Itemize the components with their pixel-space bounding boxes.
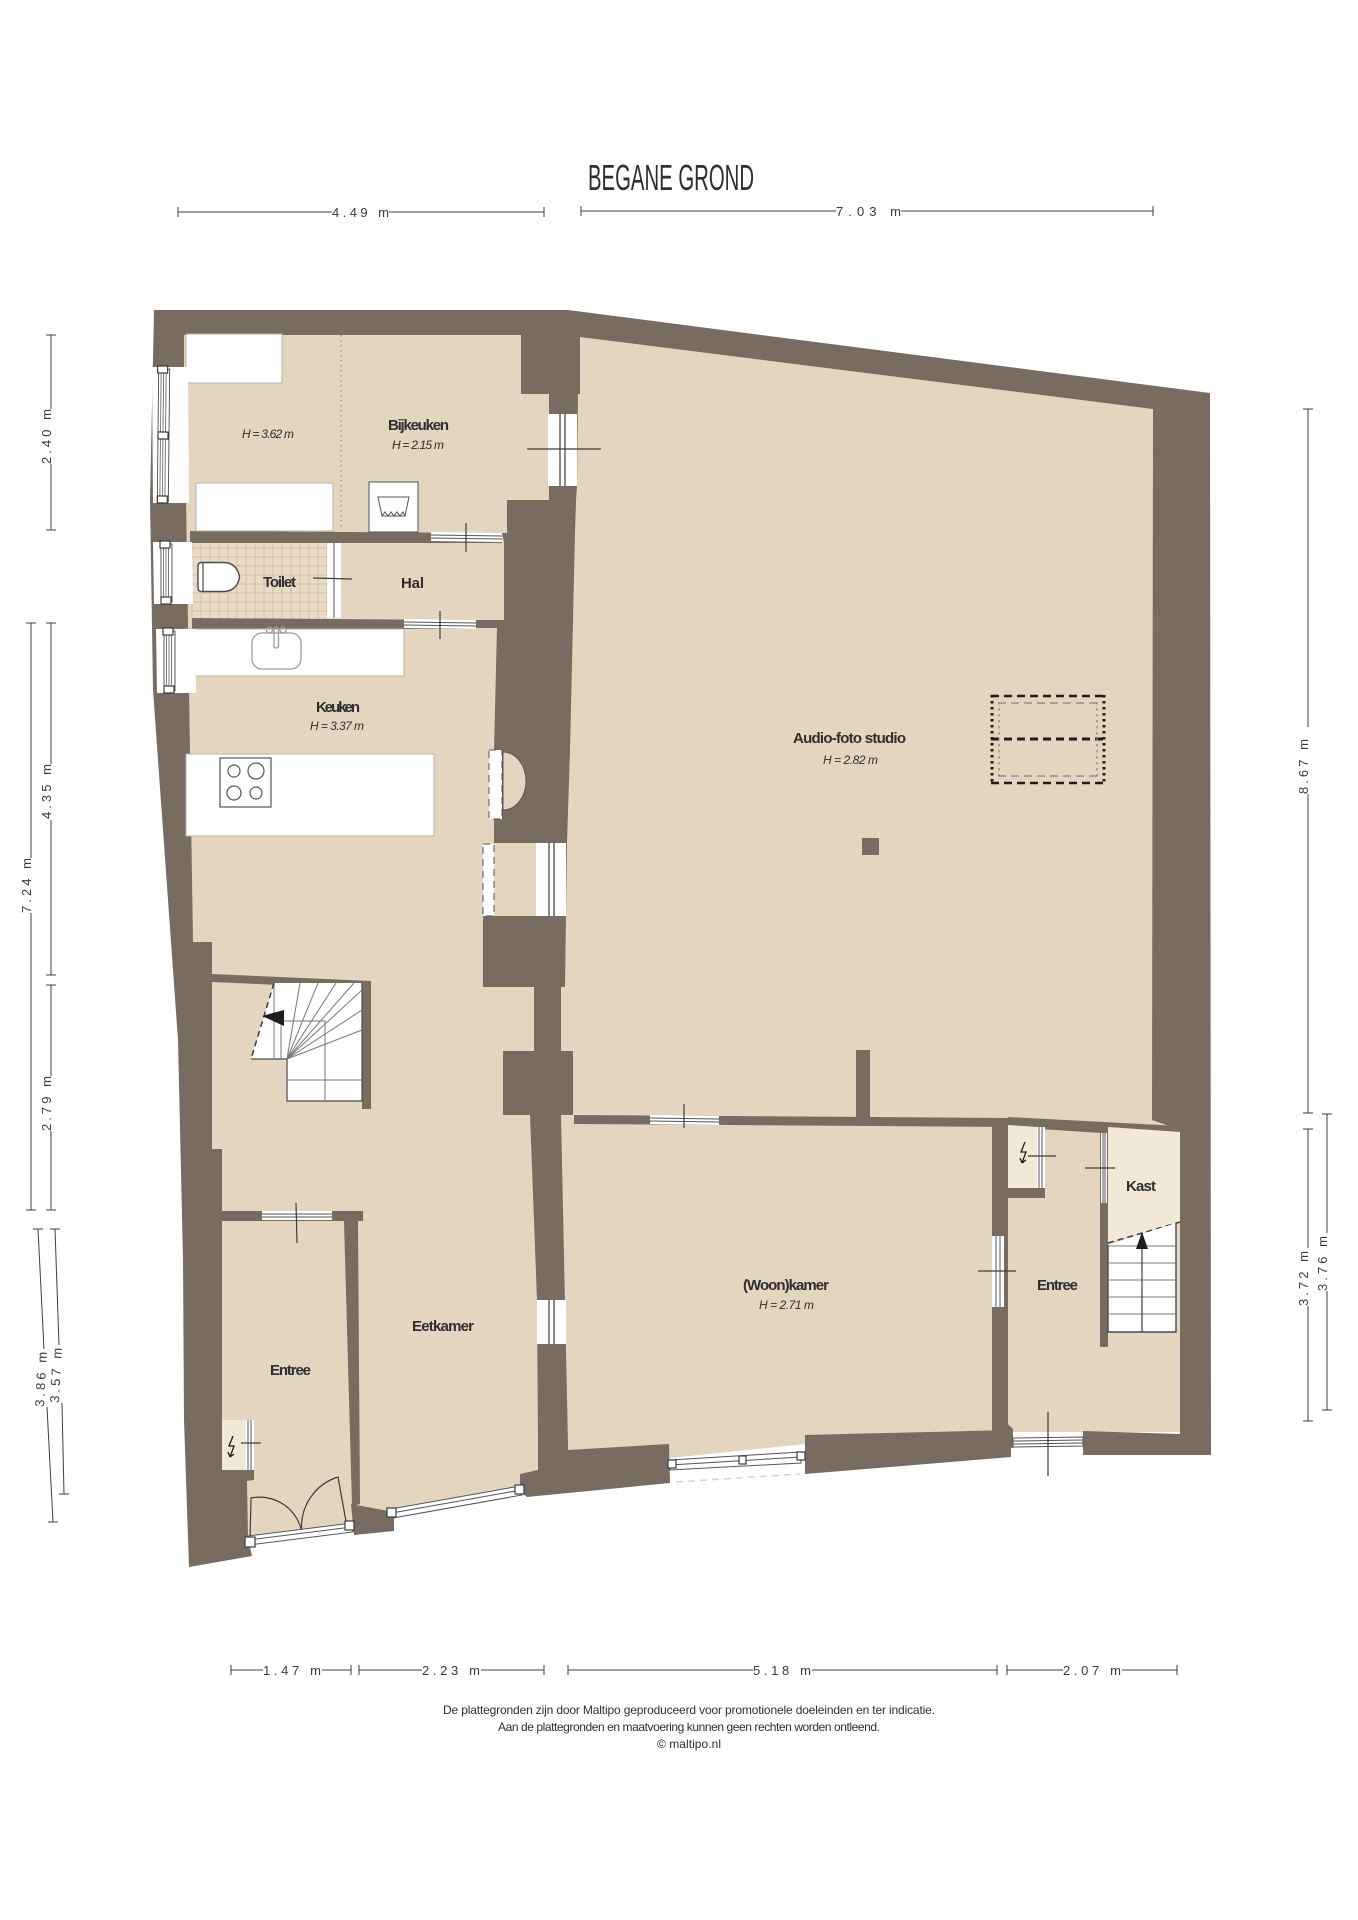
svg-text:Keuken: Keuken (316, 699, 360, 716)
svg-text:Entree: Entree (270, 1362, 311, 1379)
svg-text:BEGANE GROND: BEGANE GROND (588, 157, 754, 198)
svg-text:Aan de plattegronden en maatvo: Aan de plattegronden en maatvoering kunn… (498, 1720, 880, 1734)
svg-text:H = 3.37 m: H = 3.37 m (310, 719, 364, 733)
svg-text:H = 2.71 m: H = 2.71 m (759, 1298, 814, 1312)
svg-text:Entree: Entree (1037, 1277, 1078, 1294)
svg-text:De plattegronden zijn door Mal: De plattegronden zijn door Maltipo gepro… (443, 1703, 935, 1717)
svg-text:Audio-foto studio: Audio-foto studio (793, 730, 906, 747)
svg-text:Hal: Hal (401, 575, 424, 592)
svg-text:H = 3.62 m: H = 3.62 m (242, 427, 294, 441)
svg-text:Bijkeuken: Bijkeuken (388, 417, 449, 434)
svg-text:Kast: Kast (1126, 1178, 1156, 1195)
svg-text:© maltipo.nl: © maltipo.nl (657, 1737, 721, 1751)
svg-text:Toilet: Toilet (263, 574, 296, 591)
svg-text:(Woon)kamer: (Woon)kamer (743, 1277, 829, 1294)
svg-text:H = 2.82 m: H = 2.82 m (823, 753, 878, 767)
svg-text:Eetkamer: Eetkamer (412, 1318, 474, 1335)
svg-text:H = 2.15 m: H = 2.15 m (392, 438, 444, 452)
